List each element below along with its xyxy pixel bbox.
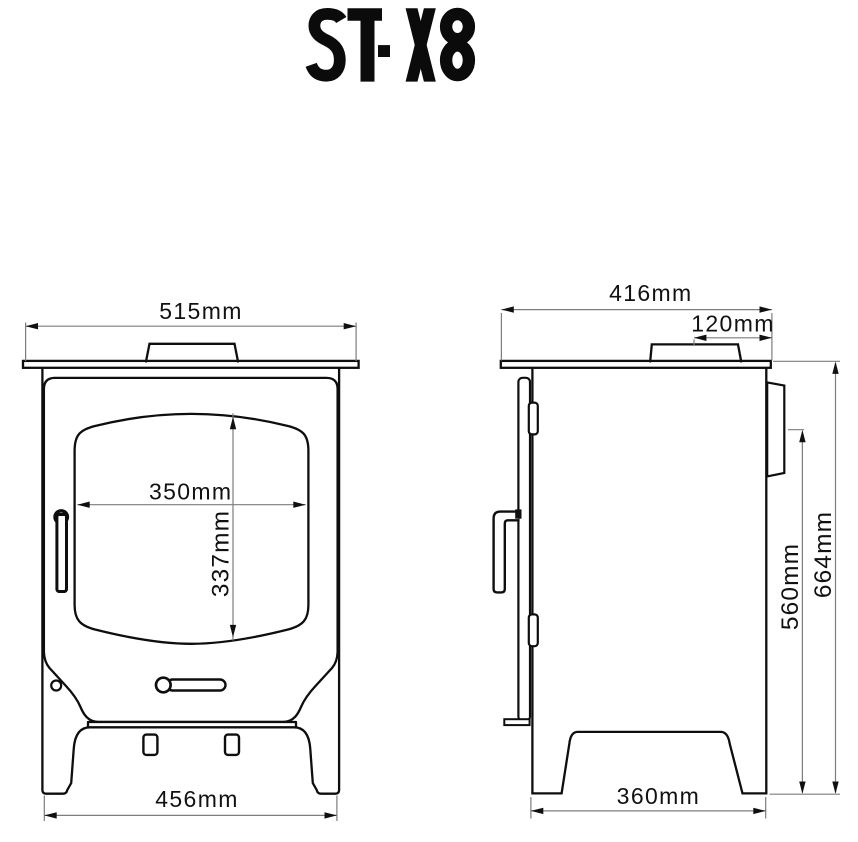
svg-text:664mm: 664mm xyxy=(810,511,837,598)
svg-text:456mm: 456mm xyxy=(155,786,238,812)
svg-text:350mm: 350mm xyxy=(149,479,232,505)
svg-text:515mm: 515mm xyxy=(159,298,242,324)
svg-text:120mm: 120mm xyxy=(691,311,774,337)
svg-text:560mm: 560mm xyxy=(777,543,804,630)
svg-text:337mm: 337mm xyxy=(208,510,235,597)
svg-text:416mm: 416mm xyxy=(609,280,692,306)
svg-text:360mm: 360mm xyxy=(617,783,700,809)
